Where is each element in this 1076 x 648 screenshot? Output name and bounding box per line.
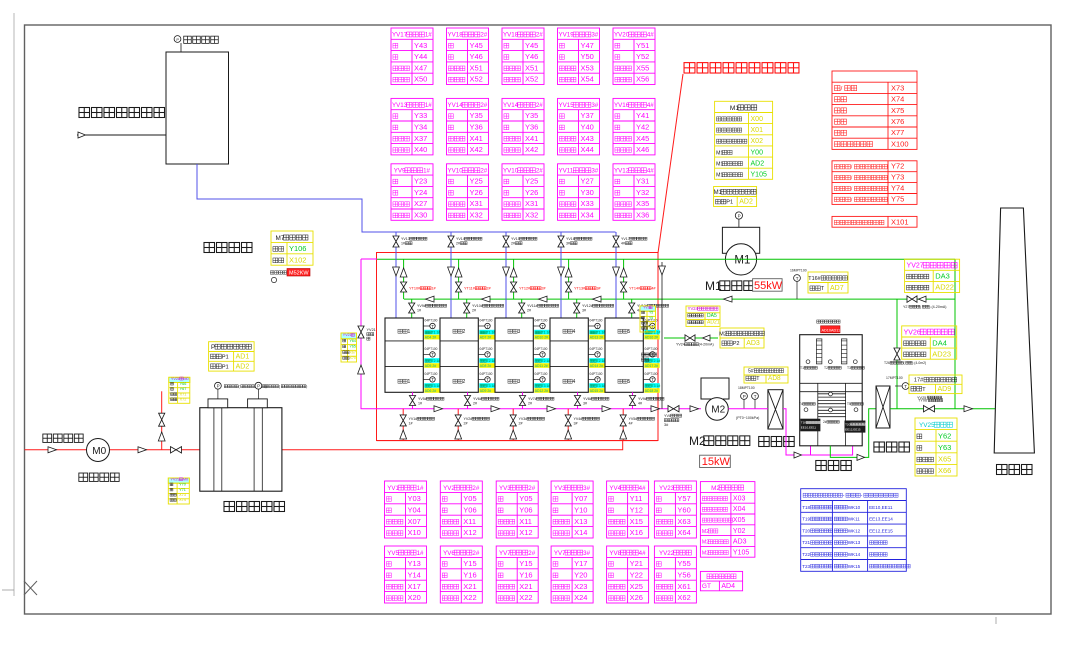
svg-text:X12: X12 — [519, 528, 532, 537]
svg-text:T: T — [596, 377, 599, 382]
svg-text:YV2: YV2 — [443, 485, 455, 492]
svg-text:T: T — [596, 324, 599, 329]
svg-text:M2: M2 — [711, 405, 725, 416]
svg-text:YV8: YV8 — [664, 414, 671, 418]
svg-text:X62: X62 — [677, 593, 690, 602]
svg-text:3#: 3# — [583, 402, 587, 406]
svg-text:WK11: WK11 — [848, 517, 861, 522]
svg-text:T: T — [541, 377, 544, 382]
svg-text:AD11 2#: AD11 2# — [535, 364, 548, 368]
svg-text:X64: X64 — [677, 528, 690, 537]
svg-text:T26: T26 — [884, 361, 890, 365]
svg-text:2#: 2# — [472, 485, 479, 492]
svg-text:2#: 2# — [823, 420, 827, 424]
svg-text:4#: 4# — [638, 402, 642, 406]
svg-text:YV7: YV7 — [554, 550, 566, 557]
svg-text:4#: 4# — [639, 485, 646, 492]
svg-text:YV14: YV14 — [503, 102, 519, 109]
svg-text:Y45: Y45 — [470, 41, 483, 50]
svg-text:Y46: Y46 — [470, 52, 483, 61]
svg-text:X5: X5 — [649, 321, 653, 325]
svg-text:4: 4 — [573, 379, 576, 385]
svg-text:Y03: Y03 — [408, 494, 421, 503]
svg-text:X47: X47 — [414, 63, 427, 72]
svg-text:1#: 1# — [418, 402, 422, 406]
svg-text:YV5#: YV5# — [629, 417, 638, 421]
svg-text:AD8 2#: AD8 2# — [480, 364, 491, 368]
svg-text:Y75: Y75 — [891, 194, 904, 203]
svg-text:Y23: Y23 — [414, 177, 427, 186]
svg-text:YV26: YV26 — [904, 329, 921, 336]
svg-text:T22: T22 — [802, 552, 810, 557]
svg-text:YV7: YV7 — [499, 550, 511, 557]
svg-text:M1: M1 — [714, 190, 723, 196]
svg-text:2#: 2# — [528, 550, 535, 557]
svg-text:X11: X11 — [519, 517, 532, 526]
svg-text:X33: X33 — [581, 199, 594, 208]
svg-text:Y60: Y60 — [677, 505, 690, 514]
svg-text:04PT100: 04PT100 — [480, 318, 493, 322]
svg-text:T3 1#: T3 1# — [432, 384, 441, 388]
svg-text:2#: 2# — [528, 402, 532, 406]
svg-text:X12: X12 — [463, 528, 476, 537]
svg-text:X11: X11 — [463, 517, 476, 526]
svg-text:YV24: YV24 — [676, 343, 685, 347]
svg-text:Y37: Y37 — [581, 111, 594, 120]
svg-text:04PT100: 04PT100 — [425, 372, 438, 376]
svg-text:X42: X42 — [470, 145, 483, 154]
svg-text:Y13: Y13 — [408, 559, 421, 568]
svg-text:T2 1#: T2 1# — [542, 359, 551, 363]
svg-text:Y106: Y106 — [289, 244, 307, 253]
svg-text:04PT100: 04PT100 — [535, 318, 548, 322]
svg-text:16MPT100: 16MPT100 — [790, 269, 807, 273]
svg-text:X37: X37 — [414, 134, 427, 143]
svg-text:P1: P1 — [222, 364, 229, 370]
svg-text:Y35: Y35 — [470, 111, 483, 120]
svg-text:T2 1#: T2 1# — [597, 359, 606, 363]
svg-text:T: T — [541, 324, 544, 329]
svg-text:2#: 2# — [480, 102, 487, 109]
svg-text:X25: X25 — [630, 582, 643, 591]
svg-text:T2: T2 — [824, 366, 828, 370]
svg-text:EE10,EE11: EE10,EE11 — [869, 505, 893, 510]
svg-text:AD17 2#: AD17 2# — [645, 364, 658, 368]
svg-text:YV13: YV13 — [401, 237, 410, 241]
svg-text:X20: X20 — [408, 593, 421, 602]
svg-text:Y31: Y31 — [636, 177, 649, 186]
svg-text:Y67: Y67 — [180, 387, 187, 391]
svg-text:P: P — [217, 384, 220, 389]
svg-text:04PT100: 04PT100 — [590, 347, 603, 351]
svg-text:YV22: YV22 — [659, 550, 675, 557]
svg-text:WK15: WK15 — [848, 564, 861, 569]
svg-text:Y27: Y27 — [581, 177, 594, 186]
svg-text:M0: M0 — [92, 446, 106, 457]
svg-text:X13: X13 — [574, 517, 587, 526]
svg-text:Y10: Y10 — [574, 505, 587, 514]
svg-text:Y06: Y06 — [519, 505, 532, 514]
svg-text:AD22: AD22 — [935, 283, 954, 292]
svg-text:T2 1#: T2 1# — [487, 359, 496, 363]
svg-text:X102: X102 — [289, 255, 307, 264]
svg-text:YV4: YV4 — [609, 485, 621, 492]
svg-text:X16: X16 — [630, 528, 643, 537]
svg-text:M1: M1 — [734, 255, 750, 267]
svg-text:18MPT100: 18MPT100 — [738, 386, 755, 390]
svg-text:AD6 2#: AD6 2# — [425, 389, 436, 393]
svg-text:YV25: YV25 — [919, 422, 935, 429]
svg-text:Y21: Y21 — [630, 559, 643, 568]
svg-text:WK12: WK12 — [848, 528, 861, 533]
svg-text:Y71: Y71 — [179, 488, 186, 492]
svg-text:YV2: YV2 — [643, 306, 650, 310]
svg-text:YV28: YV28 — [171, 377, 180, 381]
svg-text:Y5: Y5 — [649, 311, 653, 315]
svg-text:Y55: Y55 — [677, 559, 690, 568]
svg-text:T23: T23 — [802, 564, 810, 569]
svg-text:Y105: Y105 — [751, 172, 767, 179]
svg-text:T1: T1 — [800, 366, 804, 370]
svg-text:YV3: YV3 — [554, 485, 566, 492]
svg-text:X32: X32 — [525, 211, 538, 220]
svg-text:YV1: YV1 — [387, 485, 399, 492]
svg-text:T: T — [431, 352, 434, 357]
svg-text:Y72: Y72 — [891, 162, 904, 171]
svg-text:YV21: YV21 — [367, 328, 376, 332]
svg-text:3#: 3# — [582, 309, 586, 313]
svg-text:5: 5 — [628, 379, 631, 385]
svg-text:04PT100: 04PT100 — [480, 347, 493, 351]
svg-text:YT13#: YT13# — [574, 287, 586, 291]
svg-text:3#: 3# — [591, 102, 598, 109]
svg-text:2#: 2# — [536, 168, 543, 175]
svg-text:X41: X41 — [525, 134, 538, 143]
svg-text:AD1: AD1 — [236, 354, 250, 361]
svg-text:X51: X51 — [470, 63, 483, 72]
svg-text:Y22: Y22 — [630, 570, 643, 579]
svg-text:YV16: YV16 — [566, 237, 575, 241]
svg-text:X44: X44 — [581, 145, 594, 154]
svg-text:Y62: Y62 — [938, 431, 951, 440]
svg-text:EE12,EE15: EE12,EE15 — [869, 528, 893, 533]
svg-text:04PT100: 04PT100 — [535, 347, 548, 351]
svg-text:Y32: Y32 — [636, 188, 649, 197]
svg-text:Y33: Y33 — [414, 111, 427, 120]
svg-text:YV8: YV8 — [609, 550, 621, 557]
svg-text:X31: X31 — [525, 199, 538, 208]
svg-text:X26: X26 — [630, 593, 643, 602]
svg-text:P1: P1 — [726, 200, 733, 206]
svg-text:AD4: AD4 — [721, 583, 735, 590]
svg-text:M0: M0 — [183, 377, 188, 381]
svg-text:X04: X04 — [733, 506, 746, 513]
svg-text:4#: 4# — [647, 32, 654, 39]
svg-text:X35: X35 — [636, 199, 649, 208]
svg-text:X21: X21 — [519, 582, 532, 591]
svg-text:P: P — [743, 394, 746, 399]
svg-text:X15: X15 — [630, 517, 643, 526]
svg-text:AD9 2#: AD9 2# — [480, 389, 491, 393]
svg-text:YV21: YV21 — [343, 333, 352, 337]
svg-text:X5: X5 — [649, 326, 653, 330]
svg-text:YV18: YV18 — [448, 32, 464, 39]
svg-text:EE12,EE15: EE12,EE15 — [845, 427, 861, 431]
svg-text:4#: 4# — [639, 550, 646, 557]
svg-text:T: T — [541, 352, 544, 357]
svg-text:X54: X54 — [581, 75, 594, 84]
svg-text:T21: T21 — [802, 540, 810, 545]
svg-text:T: T — [486, 324, 489, 329]
svg-text:X75: X75 — [891, 106, 904, 115]
svg-text:AD23: AD23 — [932, 349, 951, 358]
svg-text:Y20: Y20 — [574, 570, 587, 579]
svg-text:YV12: YV12 — [614, 168, 630, 175]
svg-text:DA4: DA4 — [932, 338, 947, 347]
svg-text:YV18: YV18 — [503, 32, 519, 39]
svg-text:Y63: Y63 — [938, 443, 951, 452]
svg-text:P1: P1 — [222, 355, 229, 361]
svg-text:Y65: Y65 — [350, 345, 356, 349]
svg-text:X77: X77 — [891, 128, 904, 137]
svg-text:P: P — [738, 213, 741, 218]
svg-text:T: T — [651, 377, 654, 382]
svg-text:X67: X67 — [350, 350, 356, 354]
svg-text:2#: 2# — [473, 402, 477, 406]
svg-text:YV24: YV24 — [688, 306, 699, 311]
svg-text:Y52: Y52 — [636, 52, 649, 61]
svg-text:/: / — [841, 85, 843, 92]
svg-text:AD3: AD3 — [746, 340, 760, 347]
svg-text:55kW: 55kW — [754, 280, 783, 292]
svg-text:Y64: Y64 — [350, 339, 356, 343]
svg-text:2#: 2# — [536, 32, 543, 39]
svg-text:X56: X56 — [636, 75, 649, 84]
svg-text:Y35: Y35 — [525, 111, 538, 120]
svg-text:Y30: Y30 — [581, 188, 594, 197]
svg-text:YV13: YV13 — [392, 102, 408, 109]
svg-text:4#: 4# — [621, 242, 625, 246]
svg-text:Y07: Y07 — [574, 494, 587, 503]
svg-text:1#: 1# — [417, 550, 424, 557]
svg-text:YV19: YV19 — [559, 32, 575, 39]
svg-text:YV12#: YV12# — [582, 304, 593, 308]
svg-text:AD21: AD21 — [707, 320, 720, 326]
svg-text:Y04: Y04 — [408, 505, 421, 514]
svg-text:YV3#: YV3# — [519, 417, 528, 421]
svg-text:Y16: Y16 — [463, 570, 476, 579]
svg-text:T4: T4 — [799, 402, 803, 406]
svg-text:YV10: YV10 — [503, 168, 519, 175]
svg-text:(PT0~100kPa): (PT0~100kPa) — [736, 416, 759, 420]
svg-text:3: 3 — [518, 329, 521, 335]
svg-text:T1 1#: T1 1# — [487, 331, 496, 335]
svg-text:X65: X65 — [938, 455, 951, 464]
svg-text:YV20: YV20 — [614, 32, 630, 39]
svg-text:3#: 3# — [583, 485, 590, 492]
svg-text:YV14: YV14 — [456, 237, 465, 241]
svg-text:Y05: Y05 — [463, 494, 476, 503]
svg-text:T1 1#: T1 1# — [542, 331, 551, 335]
svg-text:T3 1#: T3 1# — [652, 384, 661, 388]
svg-text:AD18 2#: AD18 2# — [645, 389, 658, 393]
svg-text:Y27: Y27 — [903, 305, 909, 309]
svg-text:X30: X30 — [414, 211, 427, 220]
svg-text:TY06: TY06 — [918, 399, 927, 403]
svg-text:T1 1#: T1 1# — [432, 331, 441, 335]
svg-text:T1 1#: T1 1# — [652, 331, 661, 335]
svg-text:Y40: Y40 — [581, 123, 594, 132]
svg-text:AD2: AD2 — [751, 160, 765, 167]
svg-text:1#: 1# — [423, 168, 430, 175]
svg-text:T: T — [922, 387, 926, 393]
svg-text:X53: X53 — [581, 63, 594, 72]
svg-text:Y02: Y02 — [733, 528, 746, 535]
svg-text:2#: 2# — [519, 422, 523, 426]
svg-text:YV9#: YV9# — [417, 304, 426, 308]
svg-text:X55: X55 — [636, 63, 649, 72]
svg-text:5#: 5# — [748, 368, 754, 374]
svg-text:X70: X70 — [350, 356, 356, 360]
svg-text:1#: 1# — [425, 32, 432, 39]
svg-text:T3 1#: T3 1# — [597, 384, 606, 388]
svg-text:1#: 1# — [417, 309, 421, 313]
svg-text:3: 3 — [518, 379, 521, 385]
svg-text:X32: X32 — [470, 211, 483, 220]
svg-text:3#: 3# — [591, 32, 598, 39]
svg-text:AD7 2#: AD7 2# — [480, 336, 491, 340]
svg-text:YV6: YV6 — [443, 550, 455, 557]
svg-text:Y11: Y11 — [630, 494, 643, 503]
svg-text:2#: 2# — [480, 32, 487, 39]
svg-text:X07: X07 — [408, 517, 421, 526]
svg-text:Y05: Y05 — [519, 494, 532, 503]
svg-text:Y66: Y66 — [180, 382, 187, 386]
svg-text:AD15 2#: AD15 2# — [590, 389, 603, 393]
svg-text:17#: 17# — [914, 378, 924, 384]
svg-text:Y24: Y24 — [414, 188, 427, 197]
svg-text:Y26: Y26 — [525, 188, 538, 197]
svg-text:YV14: YV14 — [448, 102, 464, 109]
svg-text:X02: X02 — [751, 138, 764, 145]
svg-text:2: 2 — [463, 379, 466, 385]
svg-text:4#: 4# — [647, 168, 654, 175]
svg-text:YT14#: YT14# — [629, 287, 641, 291]
svg-text:X21: X21 — [463, 582, 476, 591]
svg-text:YV15: YV15 — [559, 102, 575, 109]
svg-text:DA3: DA3 — [935, 272, 950, 281]
svg-text:M0: M0 — [183, 478, 188, 482]
svg-text:YV2#: YV2# — [464, 417, 473, 421]
svg-text:T: T — [486, 352, 489, 357]
svg-text:Y25: Y25 — [525, 177, 538, 186]
svg-text:(4-20mA): (4-20mA) — [699, 343, 714, 347]
svg-text:X22: X22 — [519, 593, 532, 602]
svg-text:YV1#: YV1# — [409, 417, 418, 421]
svg-text:M52KW: M52KW — [289, 271, 309, 277]
svg-text:X51: X51 — [525, 63, 538, 72]
svg-text:YV10#: YV10# — [472, 304, 483, 308]
svg-text:YV16: YV16 — [614, 102, 630, 109]
svg-text:1: 1 — [408, 379, 411, 385]
svg-text:3#: 3# — [583, 550, 590, 557]
svg-text:X52: X52 — [525, 75, 538, 84]
svg-text:Y74: Y74 — [891, 184, 904, 193]
svg-text:T: T — [821, 286, 825, 292]
svg-text:T2 1#: T2 1# — [652, 359, 661, 363]
svg-text:X05: X05 — [733, 517, 746, 524]
svg-text:Y36: Y36 — [525, 123, 538, 132]
svg-text:X41: X41 — [470, 134, 483, 143]
svg-text:3#: 3# — [591, 168, 598, 175]
svg-text:YV23: YV23 — [659, 485, 675, 492]
svg-text:AD2: AD2 — [739, 199, 753, 206]
svg-text:X23: X23 — [574, 582, 587, 591]
svg-text:EE13,EE14: EE13,EE14 — [869, 517, 893, 522]
svg-text:4: 4 — [573, 329, 576, 335]
svg-text:AD3: AD3 — [733, 539, 747, 546]
svg-text:X40: X40 — [414, 145, 427, 154]
svg-text:Y15: Y15 — [463, 559, 476, 568]
svg-text:2#: 2# — [464, 422, 468, 426]
svg-text:Y105: Y105 — [733, 549, 749, 556]
svg-text:X50: X50 — [414, 75, 427, 84]
svg-text:YV7#: YV7# — [528, 397, 537, 401]
svg-text:YV5#: YV5# — [418, 397, 427, 401]
svg-text:Y42: Y42 — [636, 123, 649, 132]
svg-text:Y51: Y51 — [636, 41, 649, 50]
svg-text:AD2: AD2 — [236, 363, 250, 370]
svg-text:WK13: WK13 — [848, 540, 861, 545]
svg-text:YV6#: YV6# — [473, 397, 482, 401]
svg-text:AD4 2#: AD4 2# — [425, 336, 436, 340]
svg-text:AD10 2#: AD10 2# — [535, 336, 548, 340]
svg-text:YV8#: YV8# — [583, 397, 592, 401]
svg-text:04PT100: 04PT100 — [590, 372, 603, 376]
svg-text:X61: X61 — [677, 582, 690, 591]
svg-text:GT: GT — [702, 583, 711, 590]
svg-text:YV10: YV10 — [448, 168, 464, 175]
svg-text:X24: X24 — [574, 593, 587, 602]
svg-text:4#: 4# — [629, 422, 633, 426]
svg-text:P: P — [176, 37, 179, 42]
svg-text:P: P — [257, 384, 260, 389]
svg-text:2: 2 — [463, 329, 466, 335]
svg-text:WK14: WK14 — [848, 552, 861, 557]
svg-text:WK10: WK10 — [848, 505, 861, 510]
svg-text:YV11: YV11 — [559, 168, 574, 175]
svg-text:X45: X45 — [636, 134, 649, 143]
svg-text:Y25: Y25 — [470, 177, 483, 186]
svg-text:YT11#: YT11# — [464, 287, 476, 291]
svg-text:X52: X52 — [470, 75, 483, 84]
svg-text:X100: X100 — [891, 139, 909, 148]
svg-text:X42: X42 — [525, 145, 538, 154]
svg-text:X10: X10 — [408, 528, 421, 537]
svg-text:Y34: Y34 — [414, 123, 427, 132]
svg-text:Y41: Y41 — [636, 111, 649, 120]
svg-text:AD13 2#: AD13 2# — [590, 336, 603, 340]
svg-text:2#: 2# — [472, 309, 476, 313]
svg-text:YV29: YV29 — [170, 478, 179, 482]
svg-text:Y16: Y16 — [519, 570, 532, 579]
svg-text:Y46: Y46 — [525, 52, 538, 61]
svg-text:4#: 4# — [647, 102, 654, 109]
svg-text:1: 1 — [408, 329, 411, 335]
svg-text:3#: 3# — [566, 242, 570, 246]
svg-text:X14: X14 — [574, 528, 587, 537]
svg-text:AD9: AD9 — [938, 386, 952, 393]
